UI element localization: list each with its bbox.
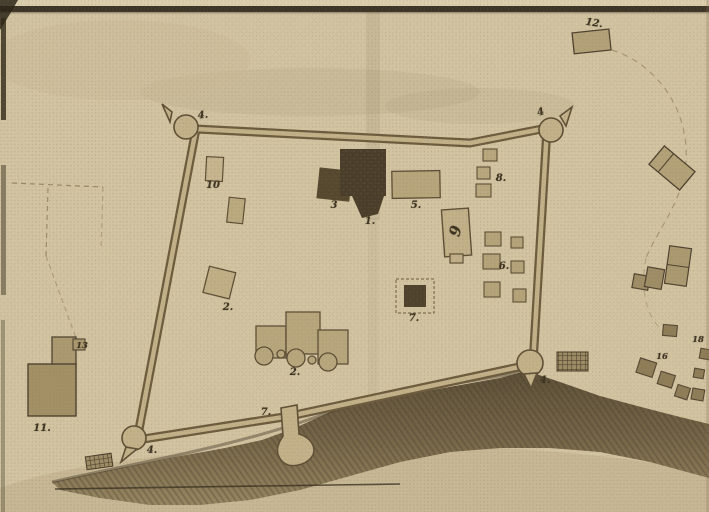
halftone-texture-2 (0, 0, 709, 512)
fortress-plan-drawing (0, 0, 709, 512)
scanned-map-page: 4. 4 4. 4. 7. 1. 3 5. 8. 6. 7. 10 2. 2. … (0, 0, 709, 512)
